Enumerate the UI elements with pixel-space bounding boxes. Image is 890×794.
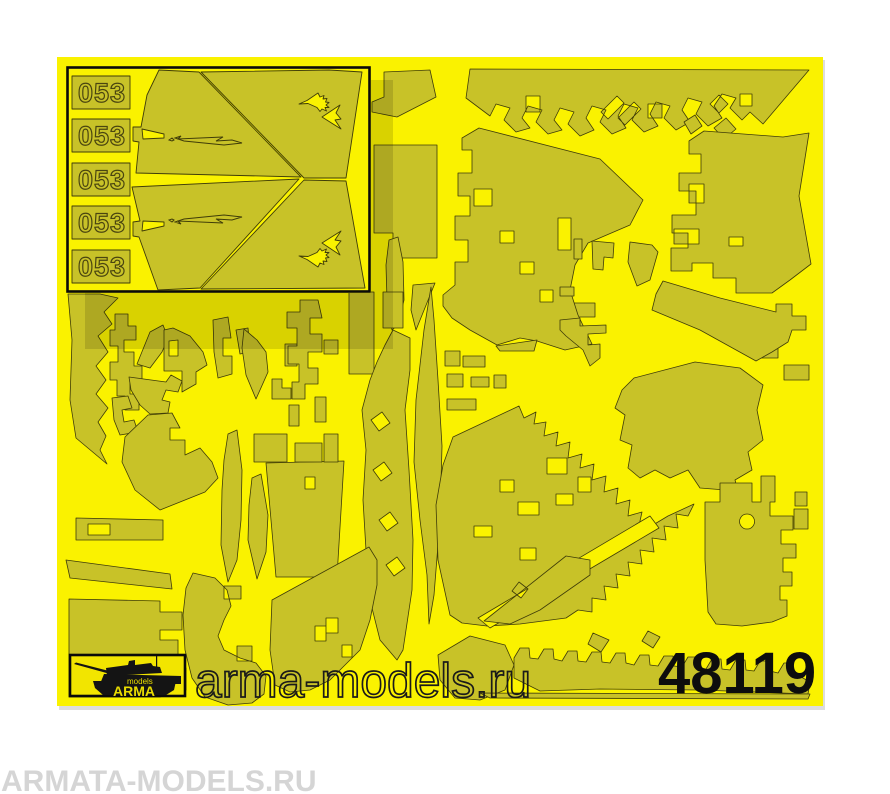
svg-text:053: 053	[78, 252, 126, 282]
svg-text:053: 053	[78, 165, 126, 195]
svg-text:053: 053	[78, 208, 126, 238]
svg-text:053: 053	[78, 121, 126, 151]
svg-text:ARMATA-MODELS.RU: ARMATA-MODELS.RU	[1, 765, 317, 794]
svg-text:053: 053	[78, 78, 126, 108]
svg-text:arma-models.ru: arma-models.ru	[195, 655, 531, 708]
svg-text:ARMA: ARMA	[113, 683, 155, 699]
svg-text:48119: 48119	[658, 641, 816, 706]
